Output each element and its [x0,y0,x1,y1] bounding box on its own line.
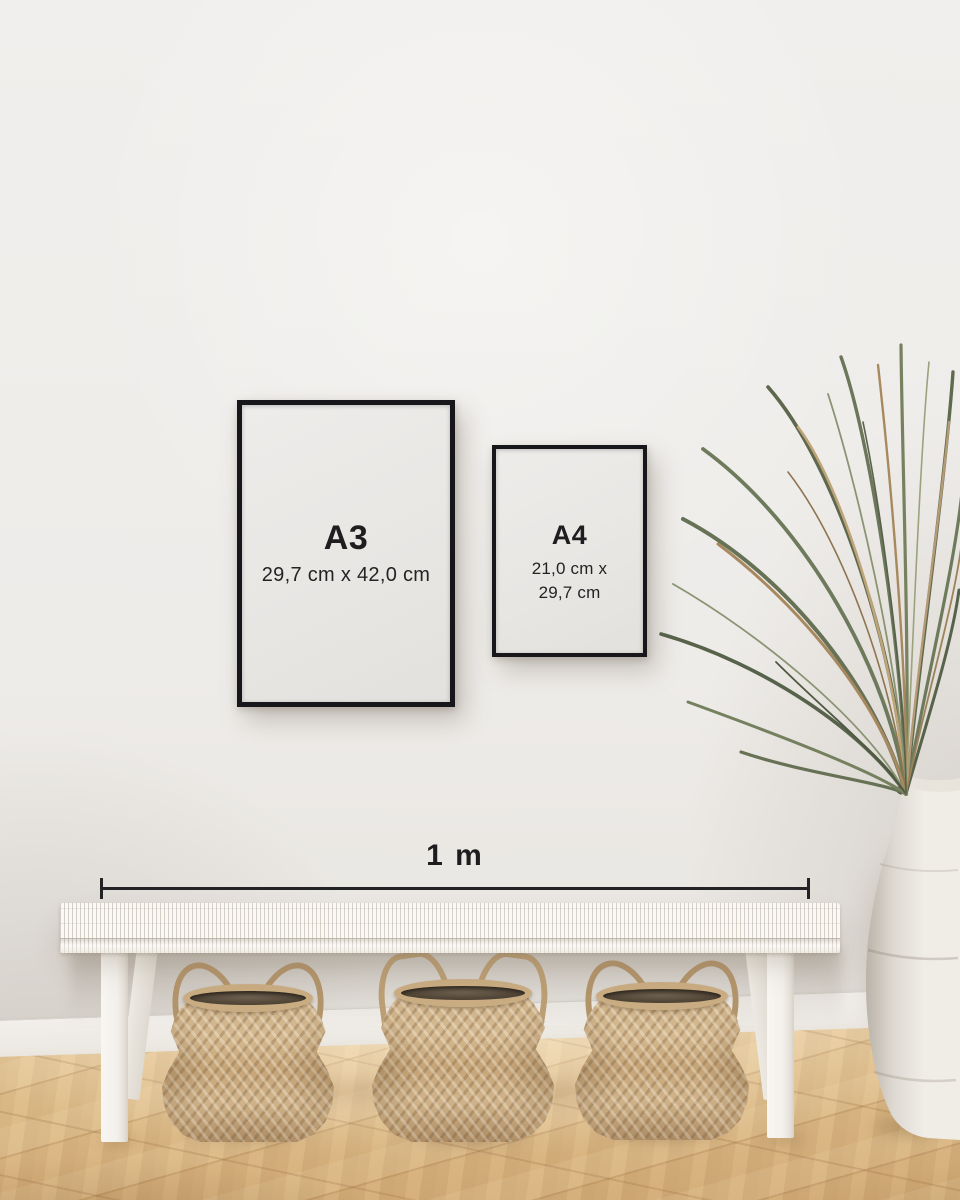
storage-basket-middle [372,952,554,1142]
bench-leg-front-right [767,946,794,1138]
poster-a3-text: A3 29,7 cm x 42,0 cm [262,521,431,587]
scale-label: 1 m [100,839,810,873]
scale-line [100,887,810,890]
bench-leg-front-left [101,946,128,1142]
poster-paper-a3: A3 29,7 cm x 42,0 cm [242,405,450,702]
poster-a3-dimensions: 29,7 cm x 42,0 cm [262,564,431,587]
storage-basket-left [162,960,334,1142]
scale-tick-left [100,878,103,899]
plant-fronds [661,345,960,794]
poster-frame-a4: A4 21,0 cm x 29,7 cm [492,445,647,657]
poster-frame-a3: A3 29,7 cm x 42,0 cm [237,400,455,707]
size-guide-mockup: A3 29,7 cm x 42,0 cm A4 21,0 cm x 29,7 c… [0,0,960,1200]
basket-rim [394,979,532,1007]
poster-a3-size-label: A3 [324,521,368,555]
storage-basket-right [575,958,749,1140]
palm-plant [648,332,960,817]
floor-vase [852,772,960,1144]
vase-body-shading [866,786,960,1140]
basket-body [575,995,749,1140]
basket-body [162,997,334,1142]
basket-rim [596,982,728,1010]
basket-rim [183,984,314,1012]
poster-a4-size-label: A4 [552,522,588,549]
bench-seat [60,903,840,953]
scale-tick-right [807,878,810,899]
poster-a4-dimensions-line1: 21,0 cm x [532,557,608,580]
poster-paper-a4: A4 21,0 cm x 29,7 cm [496,449,643,653]
poster-a4-text: A4 21,0 cm x 29,7 cm [532,522,608,604]
basket-body [372,992,554,1142]
poster-a4-dimensions-line2: 29,7 cm [539,581,601,604]
